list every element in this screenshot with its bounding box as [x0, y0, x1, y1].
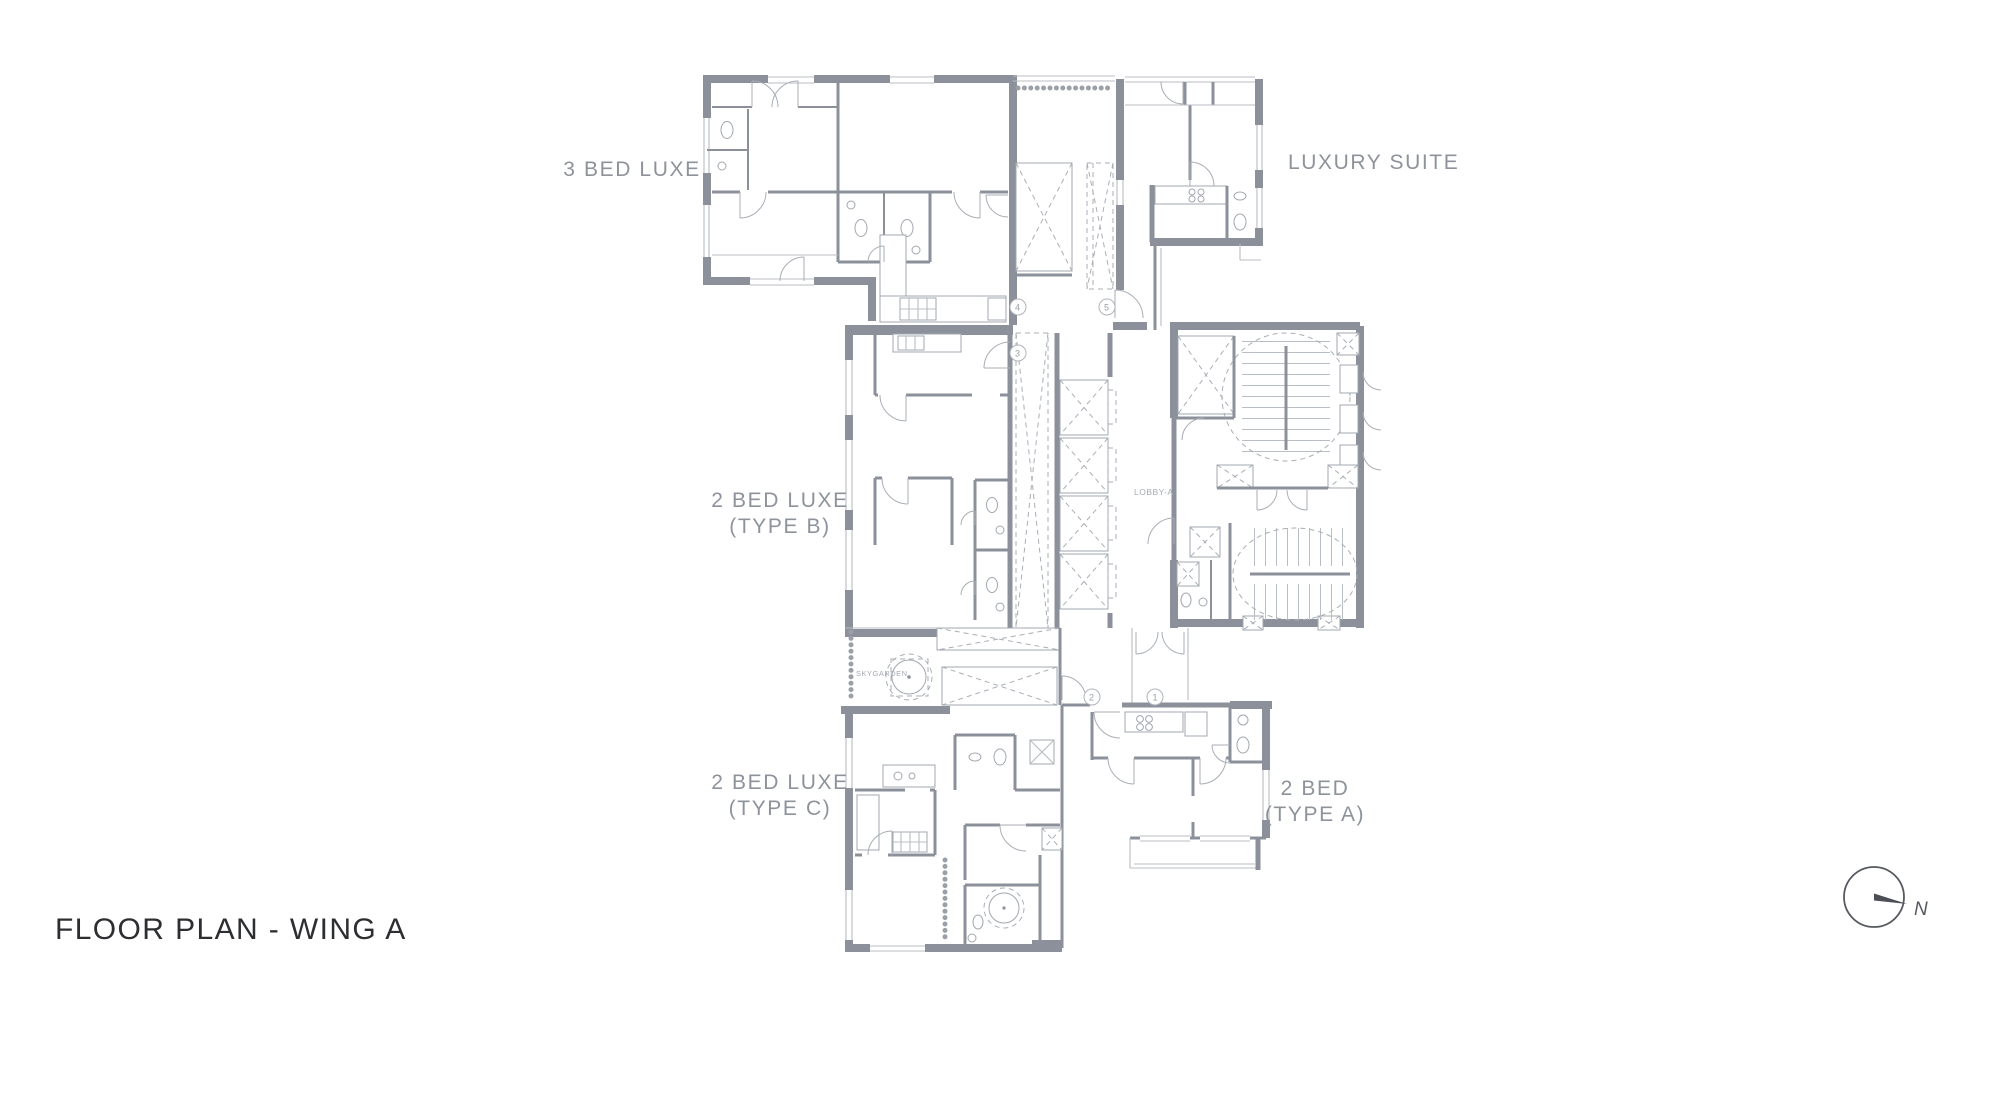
marker-1: 1: [1153, 693, 1158, 703]
label-2bed-a-line1: 2 BED: [1281, 777, 1350, 801]
label-skygarden: SKYGARDEN: [856, 669, 908, 678]
terrace-elevator-core-top: [1013, 76, 1147, 377]
unit-2bed-type-b-plan: [843, 330, 1013, 637]
marker-3: 3: [1015, 349, 1020, 359]
label-2bed-b-line2: (TYPE B): [729, 515, 830, 539]
north-needle-icon: [1874, 894, 1907, 905]
unit-3bed-luxe-plan: [700, 72, 1013, 330]
marker-2: 2: [1089, 693, 1094, 703]
label-2bed-c-line2: (TYPE C): [729, 797, 832, 821]
north-label: N: [1914, 899, 1928, 920]
label-2bed-c-line1: 2 BED LUXE: [711, 771, 848, 795]
sheet-title: FLOOR PLAN - WING A: [55, 913, 407, 947]
floor-plan-sheet: 4 5 3 2 1 N 3 BED LUXE LUXURY SUITE 2 BE…: [0, 0, 2000, 1111]
north-compass: N: [1844, 867, 1928, 927]
core-stairs-plan: [1148, 326, 1381, 630]
luxury-suite-plan: [1115, 77, 1265, 330]
marker-4: 4: [1015, 303, 1020, 313]
unit-2bed-type-c-plan: [843, 705, 1062, 954]
marker-5: 5: [1104, 303, 1109, 313]
label-luxury-suite: LUXURY SUITE: [1288, 151, 1459, 175]
label-lobby-a: LOBBY-A: [1134, 487, 1174, 497]
label-3bed-luxe: 3 BED LUXE: [563, 158, 700, 182]
unit-2bed-type-a-plan: [1062, 705, 1272, 870]
label-2bed-a-line2: (TYPE A): [1265, 803, 1365, 827]
label-2bed-b-line1: 2 BED LUXE: [711, 489, 848, 513]
elevator-bank: [1016, 333, 1116, 628]
